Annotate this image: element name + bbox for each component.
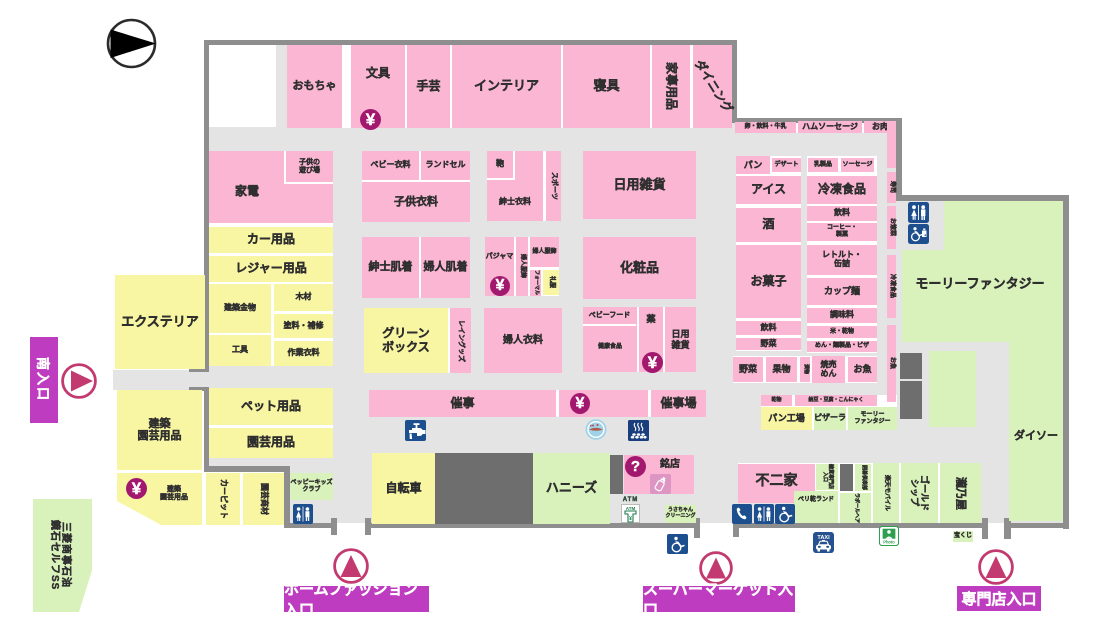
svg-text:¥: ¥ bbox=[629, 516, 632, 522]
svg-text:Photo: Photo bbox=[883, 540, 895, 545]
svg-text:ATM: ATM bbox=[626, 506, 636, 511]
